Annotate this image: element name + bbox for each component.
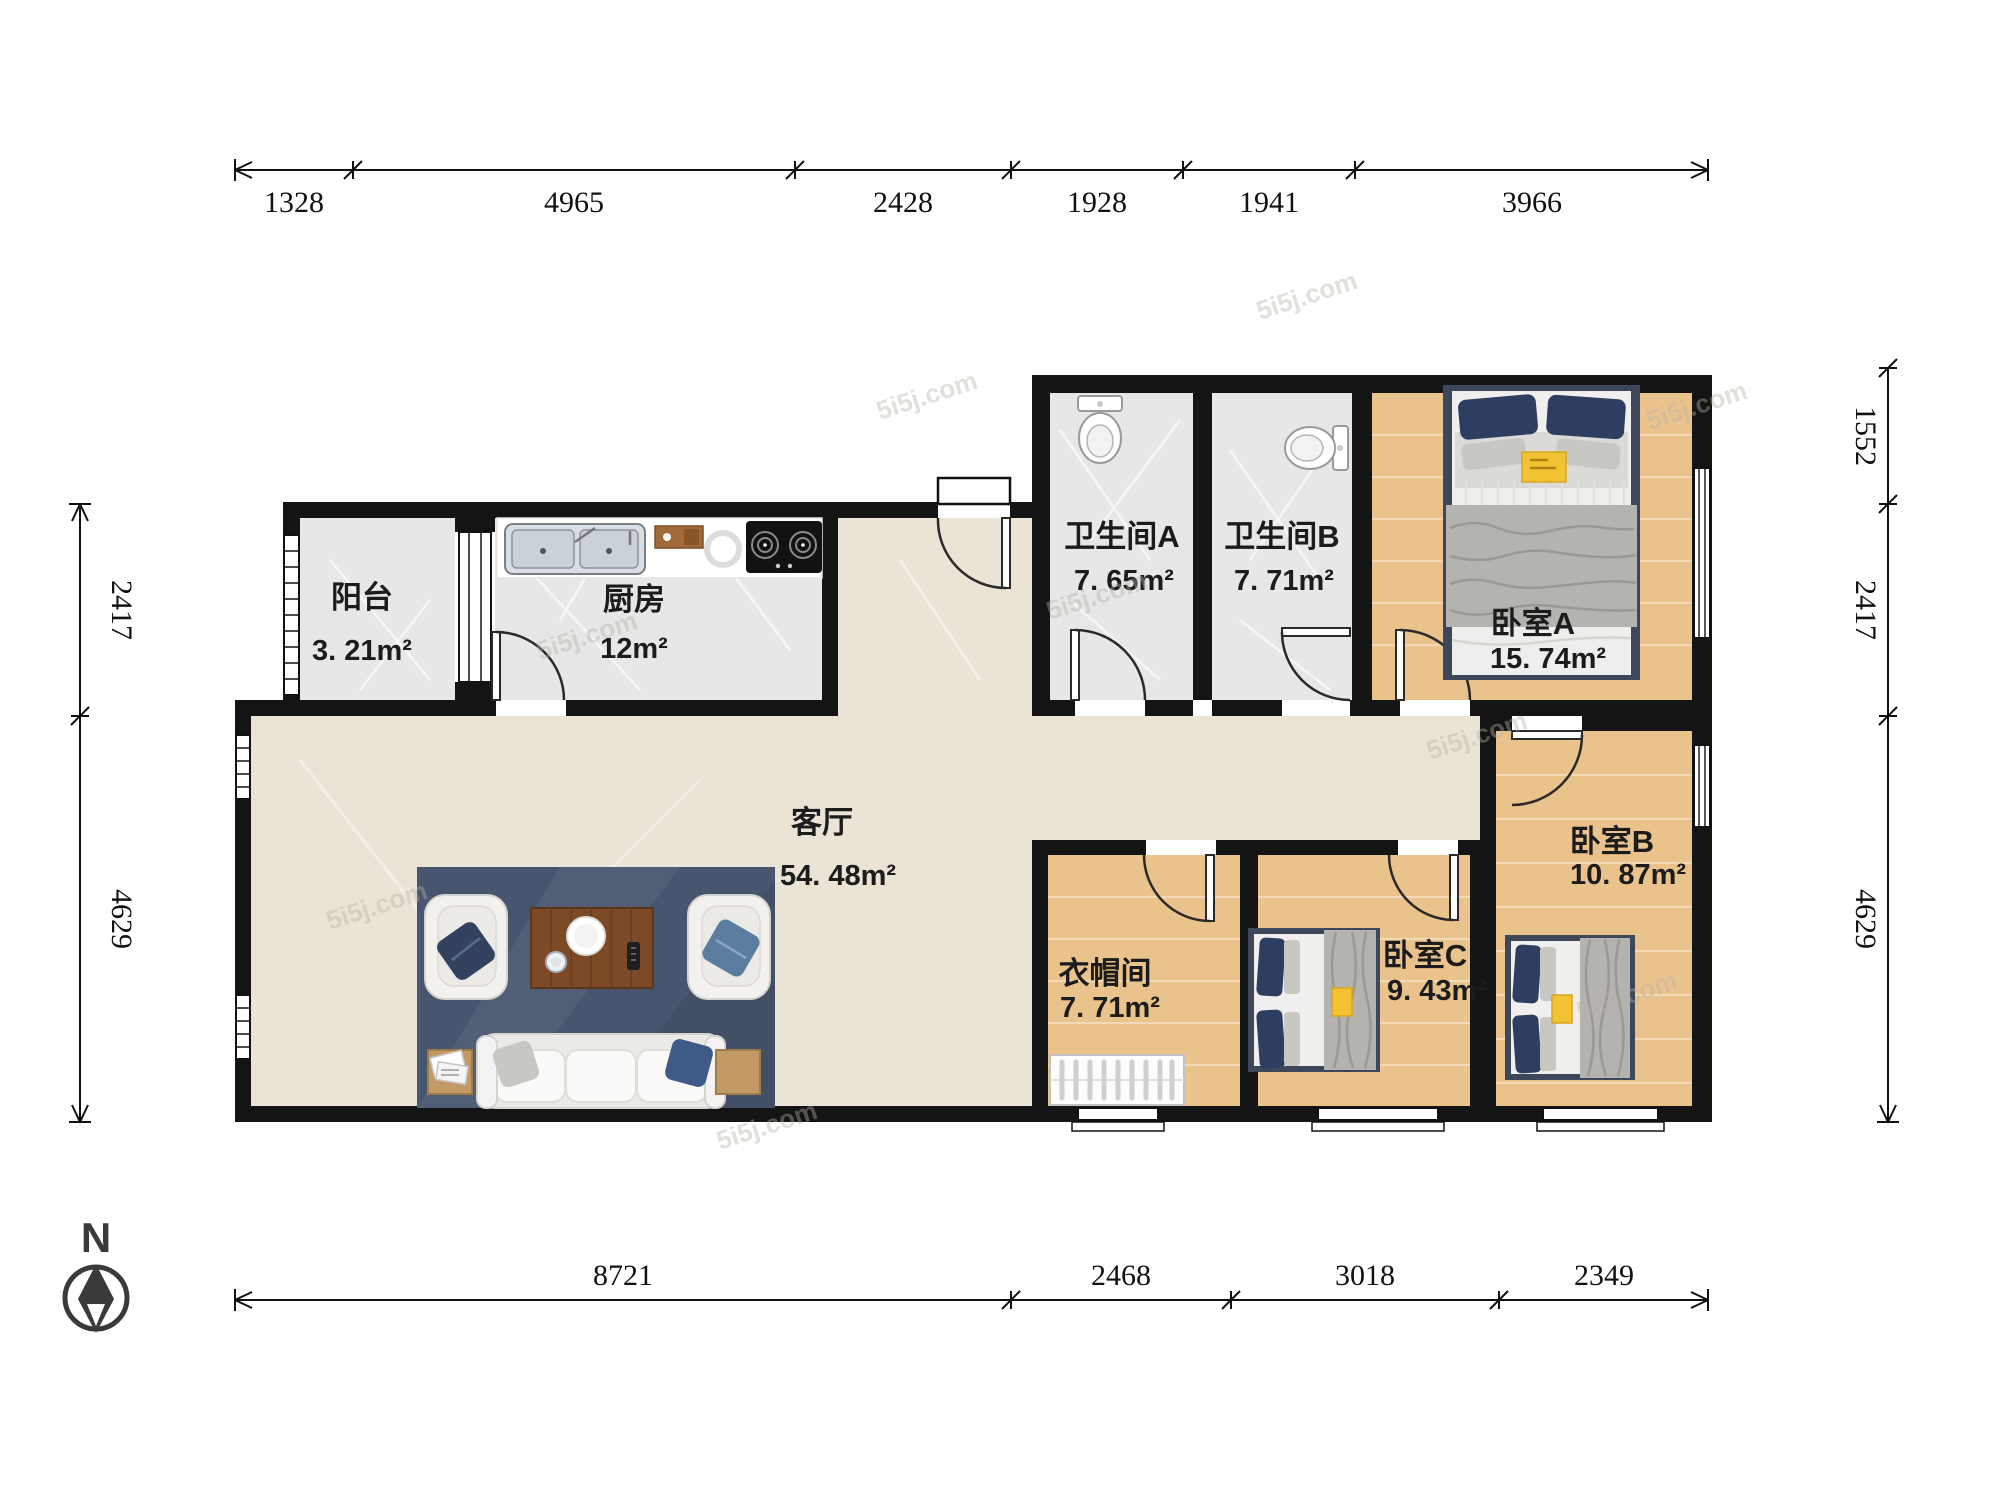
- closet-name: 衣帽间: [1059, 956, 1152, 991]
- wall-kitchen-bottom-1: [455, 700, 496, 716]
- bed-a-accent: [1522, 452, 1566, 482]
- dim-top-0: 1328: [264, 186, 324, 219]
- compass: N: [65, 1214, 127, 1333]
- pillow: [1512, 1014, 1542, 1074]
- toilet-b: [1285, 426, 1348, 470]
- dim-right-1: 2417: [1849, 580, 1882, 640]
- wall-bath-a-bottom-1: [1050, 700, 1075, 716]
- wall-bath-b-bottom-2: [1350, 700, 1372, 716]
- bedroom-c-bottom-window: [1312, 1108, 1444, 1131]
- dimension-line-bottom: [235, 1289, 1708, 1311]
- bed-c-accent: [1332, 988, 1352, 1016]
- bedroom-a-window: [1694, 468, 1710, 638]
- balcony-area: 3. 21m²: [312, 635, 412, 667]
- wall-step-left: [235, 700, 300, 716]
- bed-c: [1248, 928, 1380, 1072]
- counter-bowl: [707, 533, 739, 565]
- pillow: [1256, 937, 1286, 997]
- dim-left-0: 2417: [105, 580, 138, 640]
- pillow: [1457, 394, 1538, 441]
- wardrobe: [1050, 1055, 1184, 1105]
- remote-control: [627, 942, 640, 970]
- living-left-window-2: [236, 995, 250, 1059]
- floor-plan-page: 阳台 3. 21m² 厨房 12m² 客厅 54. 48m² 卫生间A 7. 6…: [0, 0, 2000, 1500]
- bath-b-name: 卫生间B: [1224, 519, 1339, 554]
- dim-right-2: 4629: [1849, 889, 1882, 949]
- wall-top-left: [283, 502, 938, 518]
- wall-bath-b-bottom-1: [1212, 700, 1282, 716]
- watermark-text: 5i5j.com: [1253, 265, 1361, 326]
- wall-bed-c-right: [1470, 840, 1496, 1106]
- dim-bottom-1: 2468: [1091, 1259, 1151, 1292]
- dim-right-0: 1552: [1849, 406, 1882, 466]
- closet-bottom-window: [1072, 1108, 1164, 1131]
- wall-bottom: [235, 1106, 1712, 1122]
- bed-c-area: 9. 43m²: [1387, 975, 1487, 1007]
- dim-bottom-3: 2349: [1574, 1259, 1634, 1292]
- dim-top-2: 2428: [873, 186, 933, 219]
- living-room-set: [417, 867, 775, 1108]
- wall-partition-bottom-stub: [455, 682, 495, 700]
- balcony-left-window: [284, 535, 299, 695]
- wall-partition-top-stub: [455, 518, 495, 532]
- pillow: [1546, 394, 1627, 439]
- bed-b-name: 卧室B: [1570, 824, 1654, 859]
- wall-closet-top-2: [1216, 840, 1240, 855]
- living-name: 客厅: [791, 805, 853, 840]
- bedroom-b-bottom-window: [1537, 1108, 1664, 1131]
- wall-bed-c-top-2: [1458, 840, 1470, 855]
- wall-bath-a-bottom-2: [1145, 700, 1193, 716]
- wall-balcony-bottom: [300, 700, 455, 716]
- side-table-left: [428, 1050, 472, 1094]
- living-left-window-1: [236, 735, 250, 799]
- wall-bath-divider: [1193, 393, 1212, 700]
- dimension-line-left: [69, 504, 91, 1122]
- bed-b-accent: [1552, 995, 1572, 1023]
- corridor-floor: [1032, 716, 1480, 840]
- dimension-line-right: [1877, 359, 1899, 1122]
- dim-top-3: 1928: [1067, 186, 1127, 219]
- entrance-sill: [938, 478, 1010, 504]
- dim-bottom-0: 8721: [593, 1259, 653, 1292]
- wall-closet-left: [1032, 840, 1048, 1122]
- bed-c-name: 卧室C: [1383, 938, 1467, 973]
- floor-plan-canvas: 阳台 3. 21m² 厨房 12m² 客厅 54. 48m² 卫生间A 7. 6…: [0, 0, 2000, 1500]
- bedroom-b-window: [1694, 745, 1710, 827]
- wall-bed-a-bottom-1: [1372, 700, 1400, 716]
- bath-a-name: 卫生间A: [1064, 519, 1179, 554]
- toilet-a: [1078, 396, 1122, 463]
- gas-stove: [746, 521, 822, 573]
- side-table-right: [716, 1050, 760, 1094]
- wall-bed-b-top-2: [1582, 716, 1692, 731]
- armchair-right: [688, 895, 770, 999]
- pillow: [1512, 944, 1542, 1004]
- bed-a-area: 15. 74m²: [1490, 643, 1606, 675]
- wall-bed-c-top-1: [1258, 840, 1398, 855]
- sofa: [477, 1034, 725, 1108]
- bed-b-area: 10. 87m²: [1570, 859, 1686, 891]
- watermark-text: 5i5j.com: [873, 365, 981, 426]
- pillow: [1256, 1009, 1286, 1069]
- balcony-name: 阳台: [331, 580, 393, 615]
- kitchen-counter: [497, 518, 822, 578]
- wall-bed-a-left: [1352, 393, 1372, 700]
- wall-kitchen-right: [822, 518, 838, 700]
- coffee-table: [531, 908, 653, 988]
- wall-bath-left: [1032, 393, 1050, 716]
- compass-north-label: N: [81, 1214, 111, 1261]
- dim-left-1: 4629: [105, 889, 138, 949]
- living-area: 54. 48m²: [780, 860, 896, 892]
- bed-a-name: 卧室A: [1491, 606, 1575, 641]
- dimension-line-top: [235, 159, 1708, 181]
- armchair-left: [425, 895, 507, 999]
- dim-bottom-2: 3018: [1335, 1259, 1395, 1292]
- dim-top-1: 4965: [544, 186, 604, 219]
- wall-kitchen-bottom-2: [566, 700, 838, 716]
- bath-b-area: 7. 71m²: [1234, 565, 1334, 597]
- wall-closet-top-1: [1032, 840, 1146, 855]
- dim-top-5: 3966: [1502, 186, 1562, 219]
- closet-area: 7. 71m²: [1060, 992, 1160, 1024]
- partition-window: [459, 532, 491, 682]
- dim-top-4: 1941: [1239, 186, 1299, 219]
